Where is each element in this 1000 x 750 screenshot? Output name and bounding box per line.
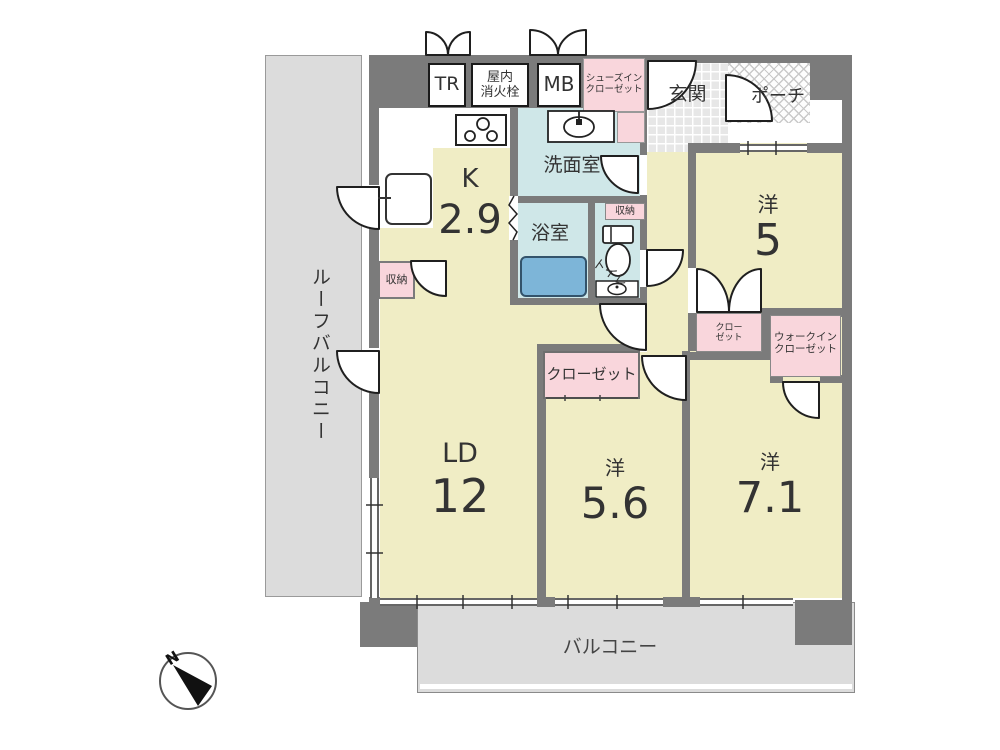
bedroom71-label: 洋 bbox=[752, 450, 788, 474]
mb-double-door-left bbox=[530, 30, 558, 55]
kitchen-balcony-door-gap bbox=[365, 185, 379, 228]
bedroom56-label: 洋 bbox=[597, 456, 633, 480]
roof-balcony-label: ルーフバルコニー bbox=[301, 255, 337, 455]
fire-hydrant-label: 屋内 消火栓 bbox=[471, 66, 529, 106]
bedroom5-left-wall-seg1 bbox=[688, 148, 696, 268]
porch-white-strip bbox=[728, 123, 842, 143]
right-outer-wall bbox=[842, 55, 852, 602]
wall-under-wet-rooms bbox=[510, 298, 647, 305]
balcony-label: バルコニー bbox=[555, 636, 665, 660]
washroom-door-gap bbox=[640, 155, 647, 195]
washroom-bath-wall bbox=[510, 196, 595, 203]
closet5-wic-wall bbox=[762, 308, 770, 352]
living-size: 12 bbox=[420, 470, 500, 522]
toilet-storage-label: 収納 bbox=[605, 203, 645, 220]
left-wall-seg1 bbox=[369, 55, 379, 185]
wall-block-bottom-left bbox=[360, 602, 417, 647]
left-wall-seg3 bbox=[369, 393, 379, 478]
toilet-door-gap bbox=[640, 250, 647, 287]
shoes-in-closet-column bbox=[617, 112, 645, 143]
bath-label: 浴室 bbox=[512, 222, 588, 246]
genkan-label: 玄関 bbox=[647, 82, 728, 108]
washroom-label: 洗面室 bbox=[512, 154, 632, 178]
bedroom5-left-wall-seg2 bbox=[688, 313, 696, 351]
meter-box-label: MB bbox=[537, 62, 581, 107]
bedroom5-top-wall-seg2 bbox=[807, 143, 852, 153]
kitchen-counter-area bbox=[380, 107, 510, 148]
bedroom56-size: 5.6 bbox=[573, 480, 657, 530]
living-door-gap bbox=[640, 305, 647, 352]
walk-in-closet-label: ウォークイン クローゼット bbox=[770, 324, 841, 362]
porch-label: ポーチ bbox=[736, 86, 820, 108]
bedroom5-size: 5 bbox=[746, 216, 790, 266]
bottom-wall-seg2 bbox=[537, 597, 555, 607]
bedroom56-71-wall bbox=[682, 351, 690, 598]
tr-double-door-right bbox=[448, 32, 470, 55]
mb-double-door-right bbox=[558, 30, 586, 55]
bedroom71-size: 7.1 bbox=[728, 474, 812, 524]
floorplan-canvas: TR 屋内 消火栓 MB シューズイン クローゼット 玄関 ポーチ 洗面室 浴室… bbox=[0, 0, 1000, 750]
wall-under-closet5 bbox=[688, 352, 770, 360]
compass-north-label: N bbox=[158, 644, 189, 674]
bedroom5-top-wall-seg1 bbox=[688, 143, 740, 153]
bedroom56-closet-label: クローゼット bbox=[543, 351, 640, 399]
shoes-in-closet-label: シューズイン クローゼット bbox=[583, 68, 645, 102]
bottom-wall-seg3 bbox=[663, 597, 700, 607]
bedroom5-closet-label: クロー ゼット bbox=[696, 317, 762, 349]
trunk-room-label: TR bbox=[428, 62, 466, 107]
wall-block-bottom-right bbox=[795, 600, 852, 645]
bath-floor bbox=[510, 196, 595, 298]
living-label: LD bbox=[425, 438, 495, 470]
closet5-door-gap bbox=[688, 268, 696, 313]
wall-over-closet56 bbox=[537, 344, 647, 351]
living-balcony-door-gap bbox=[365, 348, 379, 393]
kitchen-storage-label: 収納 bbox=[378, 261, 415, 299]
kitchen-bath-wall-seg2 bbox=[510, 240, 518, 298]
kitchen-label: K bbox=[430, 165, 510, 195]
balcony-fence-line bbox=[420, 684, 852, 689]
tr-double-door-left bbox=[426, 32, 448, 55]
kitchen-size: 2.9 bbox=[426, 196, 514, 244]
